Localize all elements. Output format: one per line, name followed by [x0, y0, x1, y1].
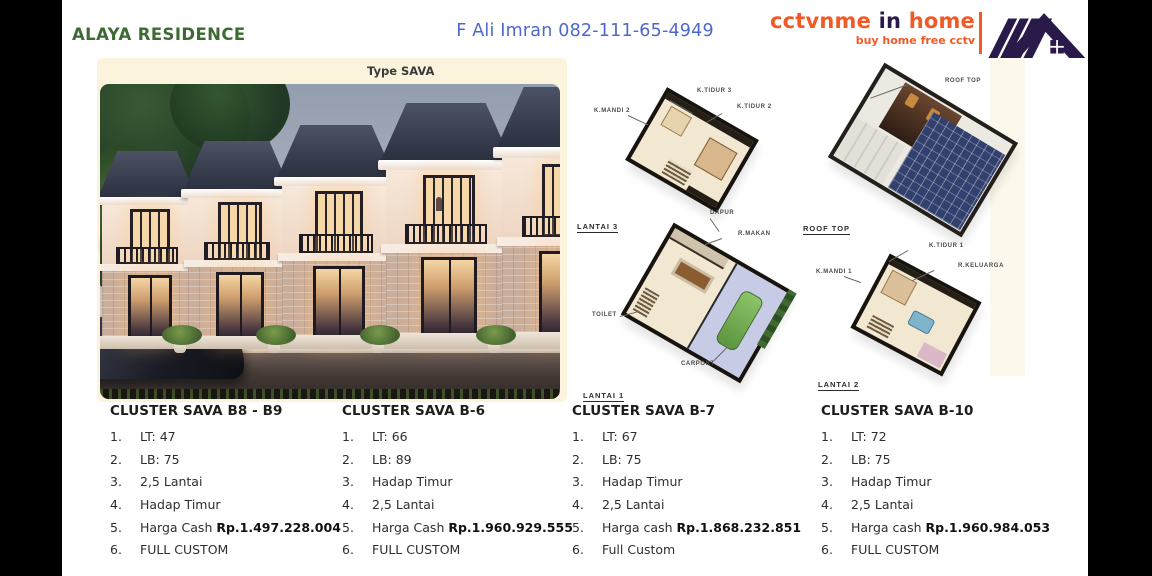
- item-text: LT: 67: [602, 430, 638, 443]
- roof-cornice: [378, 160, 515, 170]
- cluster-spec-item: 2.LB: 89: [342, 453, 577, 466]
- floor-name: ROOF TOP: [803, 224, 850, 235]
- house-unit: [386, 103, 506, 349]
- upper-wall: [282, 186, 390, 253]
- bed-area: [694, 137, 738, 181]
- cluster-spec-item: 1.LT: 66: [342, 430, 577, 443]
- item-text: Hadap Timur: [140, 498, 221, 511]
- item-text-value: 2,5 Lantai: [851, 497, 913, 512]
- cluster-spec-item: 1.LT: 67: [572, 430, 807, 443]
- content-area: ALAYA RESIDENCE F Ali Imran 082-111-65-4…: [62, 0, 1088, 576]
- item-price: Rp.1.868.232.851: [677, 520, 802, 535]
- item-text-value: Harga Cash: [140, 520, 216, 535]
- cluster-spec-item: 5.Harga Cash Rp.1.497.228.004: [110, 521, 345, 534]
- item-number: 4.: [821, 498, 851, 511]
- house-unit: [502, 87, 560, 349]
- item-number: 1.: [342, 430, 372, 443]
- item-price: Rp.1.497.228.004: [216, 520, 341, 535]
- cluster-spec-item: 1.LT: 72: [821, 430, 1056, 443]
- item-text-value: 2,5 Lantai: [140, 474, 202, 489]
- item-text-value: LT: 67: [602, 429, 638, 444]
- floor-name: LANTAI 1: [583, 391, 624, 402]
- brand-word-3: home: [909, 9, 975, 33]
- item-number: 5.: [110, 521, 140, 534]
- room-label: CARPORT: [681, 361, 715, 367]
- cluster-spec-item: 3.Hadap Timur: [572, 475, 807, 488]
- item-text-value: LT: 47: [140, 429, 176, 444]
- room-label: TOILET: [592, 312, 617, 318]
- item-text-value: Hadap Timur: [602, 474, 683, 489]
- cluster-spec-item: 3.2,5 Lantai: [110, 475, 345, 488]
- roof: [277, 125, 396, 179]
- cluster-title: CLUSTER SAVA B-6: [342, 403, 577, 419]
- cluster-spec-item: 2.LB: 75: [821, 453, 1056, 466]
- flyer-page: ALAYA RESIDENCE F Ali Imran 082-111-65-4…: [0, 0, 1152, 576]
- item-number: 2.: [821, 453, 851, 466]
- item-text: LB: 75: [851, 453, 891, 466]
- floorplan-lantai2: [850, 254, 981, 377]
- item-number: 3.: [572, 475, 602, 488]
- person-on-balcony: [436, 197, 442, 211]
- house-unit: [188, 141, 286, 349]
- upper-wall: [188, 198, 286, 260]
- item-text: Harga Cash Rp.1.497.228.004: [140, 521, 341, 534]
- item-text-value: FULL CUSTOM: [140, 542, 228, 557]
- stone-wall: [386, 253, 506, 334]
- room-label: R.KELUARGA: [958, 263, 1004, 269]
- shrub: [360, 325, 400, 345]
- item-text-value: Harga cash: [602, 520, 677, 535]
- item-text-value: 2,5 Lantai: [602, 497, 664, 512]
- item-number: 5.: [821, 521, 851, 534]
- brand-logo-line: cctvnme in home: [770, 11, 975, 32]
- item-text-value: Full Custom: [602, 542, 675, 557]
- item-text: 2,5 Lantai: [602, 498, 664, 511]
- item-text-value: 2,5 Lantai: [372, 497, 434, 512]
- room-label: K.MANDI 1: [816, 269, 852, 275]
- type-label: Type SAVA: [367, 64, 434, 78]
- cluster-title: CLUSTER SAVA B8 - B9: [110, 403, 345, 419]
- item-number: 3.: [342, 475, 372, 488]
- item-number: 6.: [110, 543, 140, 556]
- cluster-spec-item: 5.Harga cash Rp.1.868.232.851: [572, 521, 807, 534]
- wall: [686, 185, 718, 207]
- item-text: 2,5 Lantai: [140, 475, 202, 488]
- cluster-spec-list: 1.LT: 722.LB: 753.Hadap Timur4.2,5 Lanta…: [821, 430, 1056, 556]
- roof: [496, 87, 560, 150]
- item-text-value: Hadap Timur: [851, 474, 932, 489]
- cluster-spec-item: 2.LB: 75: [572, 453, 807, 466]
- brand-word-1: cctvnme: [770, 9, 871, 33]
- stone-wall: [282, 261, 390, 334]
- cluster-column: CLUSTER SAVA B-71.LT: 672.LB: 753.Hadap …: [572, 403, 807, 566]
- house-unit: [282, 125, 390, 349]
- item-number: 2.: [110, 453, 140, 466]
- item-text-value: LB: 75: [602, 452, 642, 467]
- item-text: LB: 89: [372, 453, 412, 466]
- house-logo-icon: [986, 6, 1086, 62]
- floor-molding: [184, 260, 290, 267]
- item-text: Harga Cash Rp.1.960.929.555: [372, 521, 573, 534]
- floor-molding: [497, 237, 560, 246]
- letterbox-right: [1088, 0, 1152, 576]
- upper-wall: [386, 170, 506, 244]
- item-number: 5.: [572, 521, 602, 534]
- item-number: 4.: [110, 498, 140, 511]
- item-text-value: LT: 72: [851, 429, 887, 444]
- item-text: 2,5 Lantai: [851, 498, 913, 511]
- item-text-value: LB: 89: [372, 452, 412, 467]
- item-number: 2.: [572, 453, 602, 466]
- cluster-spec-item: 2.LB: 75: [110, 453, 345, 466]
- cluster-spec-item: 5.Harga cash Rp.1.960.984.053: [821, 521, 1056, 534]
- roof-cornice: [493, 147, 560, 158]
- cluster-spec-list: 1.LT: 472.LB: 753.2,5 Lantai4.Hadap Timu…: [110, 430, 345, 556]
- cluster-spec-item: 6.FULL CUSTOM: [342, 543, 577, 556]
- page-title: ALAYA RESIDENCE: [72, 25, 246, 44]
- shrub: [162, 325, 202, 345]
- item-number: 1.: [110, 430, 140, 443]
- balcony-railing: [116, 247, 177, 266]
- item-text: Hadap Timur: [851, 475, 932, 488]
- entry-door: [313, 266, 364, 341]
- upper-wall: [102, 205, 192, 264]
- cluster-spec-item: 3.Hadap Timur: [821, 475, 1056, 488]
- room-label: K.TIDUR 2: [737, 104, 772, 110]
- panel-edge-strip: [990, 58, 1025, 376]
- item-text: Full Custom: [602, 543, 675, 556]
- cluster-column: CLUSTER SAVA B-61.LT: 662.LB: 893.Hadap …: [342, 403, 577, 566]
- item-text-value: Hadap Timur: [140, 497, 221, 512]
- stairs: [662, 159, 693, 186]
- room-label: ROOF TOP: [945, 78, 981, 84]
- letterbox-left: [0, 0, 62, 576]
- item-text: FULL CUSTOM: [372, 543, 460, 556]
- cluster-spec-list: 1.LT: 672.LB: 753.Hadap Timur4.2,5 Lanta…: [572, 430, 807, 556]
- item-number: 3.: [110, 475, 140, 488]
- balcony-railing: [405, 224, 487, 246]
- item-number: 6.: [572, 543, 602, 556]
- brand-logo-text: cctvnme in home buy home free cctv: [770, 11, 975, 46]
- floor-molding: [381, 244, 511, 253]
- cluster-spec-item: 5.Harga Cash Rp.1.960.929.555: [342, 521, 577, 534]
- item-text: LB: 75: [602, 453, 642, 466]
- item-text-value: Harga Cash: [372, 520, 448, 535]
- item-number: 1.: [821, 430, 851, 443]
- room-label: K.TIDUR 1: [929, 243, 964, 249]
- item-text: Harga cash Rp.1.960.984.053: [851, 521, 1050, 534]
- item-text-value: LT: 66: [372, 429, 408, 444]
- item-price: Rp.1.960.929.555: [448, 520, 573, 535]
- agent-contact: F Ali Imran 082-111-65-4949: [380, 21, 790, 41]
- cluster-title: CLUSTER SAVA B-7: [572, 403, 807, 419]
- cluster-spec-item: 6.FULL CUSTOM: [110, 543, 345, 556]
- roof-cornice: [181, 189, 293, 198]
- item-number: 3.: [821, 475, 851, 488]
- kitchen-counter: [669, 228, 729, 269]
- entry-door: [421, 257, 477, 339]
- item-text-value: FULL CUSTOM: [851, 542, 939, 557]
- item-text: FULL CUSTOM: [851, 543, 939, 556]
- cluster-spec-list: 1.LT: 662.LB: 893.Hadap Timur4.2,5 Lanta…: [342, 430, 577, 556]
- dining-table: [675, 262, 711, 290]
- house-unit: [102, 151, 192, 349]
- item-price: Rp.1.960.984.053: [926, 520, 1051, 535]
- item-number: 4.: [342, 498, 372, 511]
- brand-tagline: buy home free cctv: [770, 35, 975, 46]
- item-text: Hadap Timur: [372, 475, 453, 488]
- cluster-spec-item: 3.Hadap Timur: [342, 475, 577, 488]
- roof-cornice: [100, 197, 198, 205]
- item-text-value: Hadap Timur: [372, 474, 453, 489]
- stone-wall: [502, 246, 560, 332]
- cluster-column: CLUSTER SAVA B8 - B91.LT: 472.LB: 753.2,…: [110, 403, 345, 566]
- item-number: 1.: [572, 430, 602, 443]
- item-number: 6.: [342, 543, 372, 556]
- cluster-column: CLUSTER SAVA B-101.LT: 722.LB: 753.Hadap…: [821, 403, 1056, 566]
- room-label: K.MANDI 2: [594, 108, 630, 114]
- item-text: LT: 72: [851, 430, 887, 443]
- entry-door: [539, 251, 560, 338]
- item-number: 6.: [821, 543, 851, 556]
- item-text-value: Harga cash: [851, 520, 926, 535]
- item-text: LT: 47: [140, 430, 176, 443]
- cluster-spec-item: 6.FULL CUSTOM: [821, 543, 1056, 556]
- cluster-spec-item: 4.2,5 Lantai: [342, 498, 577, 511]
- balcony-railing: [204, 242, 271, 262]
- grass: [100, 389, 560, 399]
- stairs: [633, 287, 660, 318]
- stairs: [866, 315, 894, 339]
- floorplan-lantai1: [621, 223, 794, 384]
- floor-molding: [278, 253, 395, 261]
- cluster-title: CLUSTER SAVA B-10: [821, 403, 1056, 419]
- roof-cornice: [274, 177, 397, 186]
- item-text-value: LB: 75: [851, 452, 891, 467]
- item-text: Hadap Timur: [602, 475, 683, 488]
- leader-line: [710, 218, 720, 232]
- balcony-railing: [522, 216, 560, 239]
- item-text: FULL CUSTOM: [140, 543, 228, 556]
- item-text: Harga cash Rp.1.868.232.851: [602, 521, 801, 534]
- item-text: LT: 66: [372, 430, 408, 443]
- cluster-spec-item: 4.Hadap Timur: [110, 498, 345, 511]
- shrub: [476, 325, 516, 345]
- gallery-panel: Type SAVA: [97, 58, 567, 402]
- room-label: DAPUR: [710, 210, 734, 216]
- cluster-spec-item: 4.2,5 Lantai: [572, 498, 807, 511]
- sofa: [907, 310, 936, 335]
- logo-divider: [979, 12, 982, 54]
- item-text: LB: 75: [140, 453, 180, 466]
- brand-word-2: in: [879, 9, 902, 33]
- floor-name: LANTAI 2: [818, 380, 859, 391]
- balcony-plan: [917, 342, 947, 368]
- balcony-railing: [299, 234, 372, 255]
- leader-line: [628, 115, 648, 125]
- floor-molding: [100, 264, 196, 271]
- leader-line: [844, 276, 861, 283]
- item-text: 2,5 Lantai: [372, 498, 434, 511]
- cluster-spec-item: 4.2,5 Lantai: [821, 498, 1056, 511]
- item-number: 5.: [342, 521, 372, 534]
- item-text-value: LB: 75: [140, 452, 180, 467]
- item-text-value: FULL CUSTOM: [372, 542, 460, 557]
- house-photo[interactable]: [100, 84, 560, 399]
- room-label: K.TIDUR 3: [697, 88, 732, 94]
- upper-wall: [502, 158, 560, 237]
- item-number: 4.: [572, 498, 602, 511]
- cluster-spec-item: 6.Full Custom: [572, 543, 807, 556]
- shrub: [256, 325, 296, 345]
- cluster-spec-item: 1.LT: 47: [110, 430, 345, 443]
- item-number: 2.: [342, 453, 372, 466]
- floor-name: LANTAI 3: [577, 222, 618, 233]
- room-label: R.MAKAN: [738, 231, 771, 237]
